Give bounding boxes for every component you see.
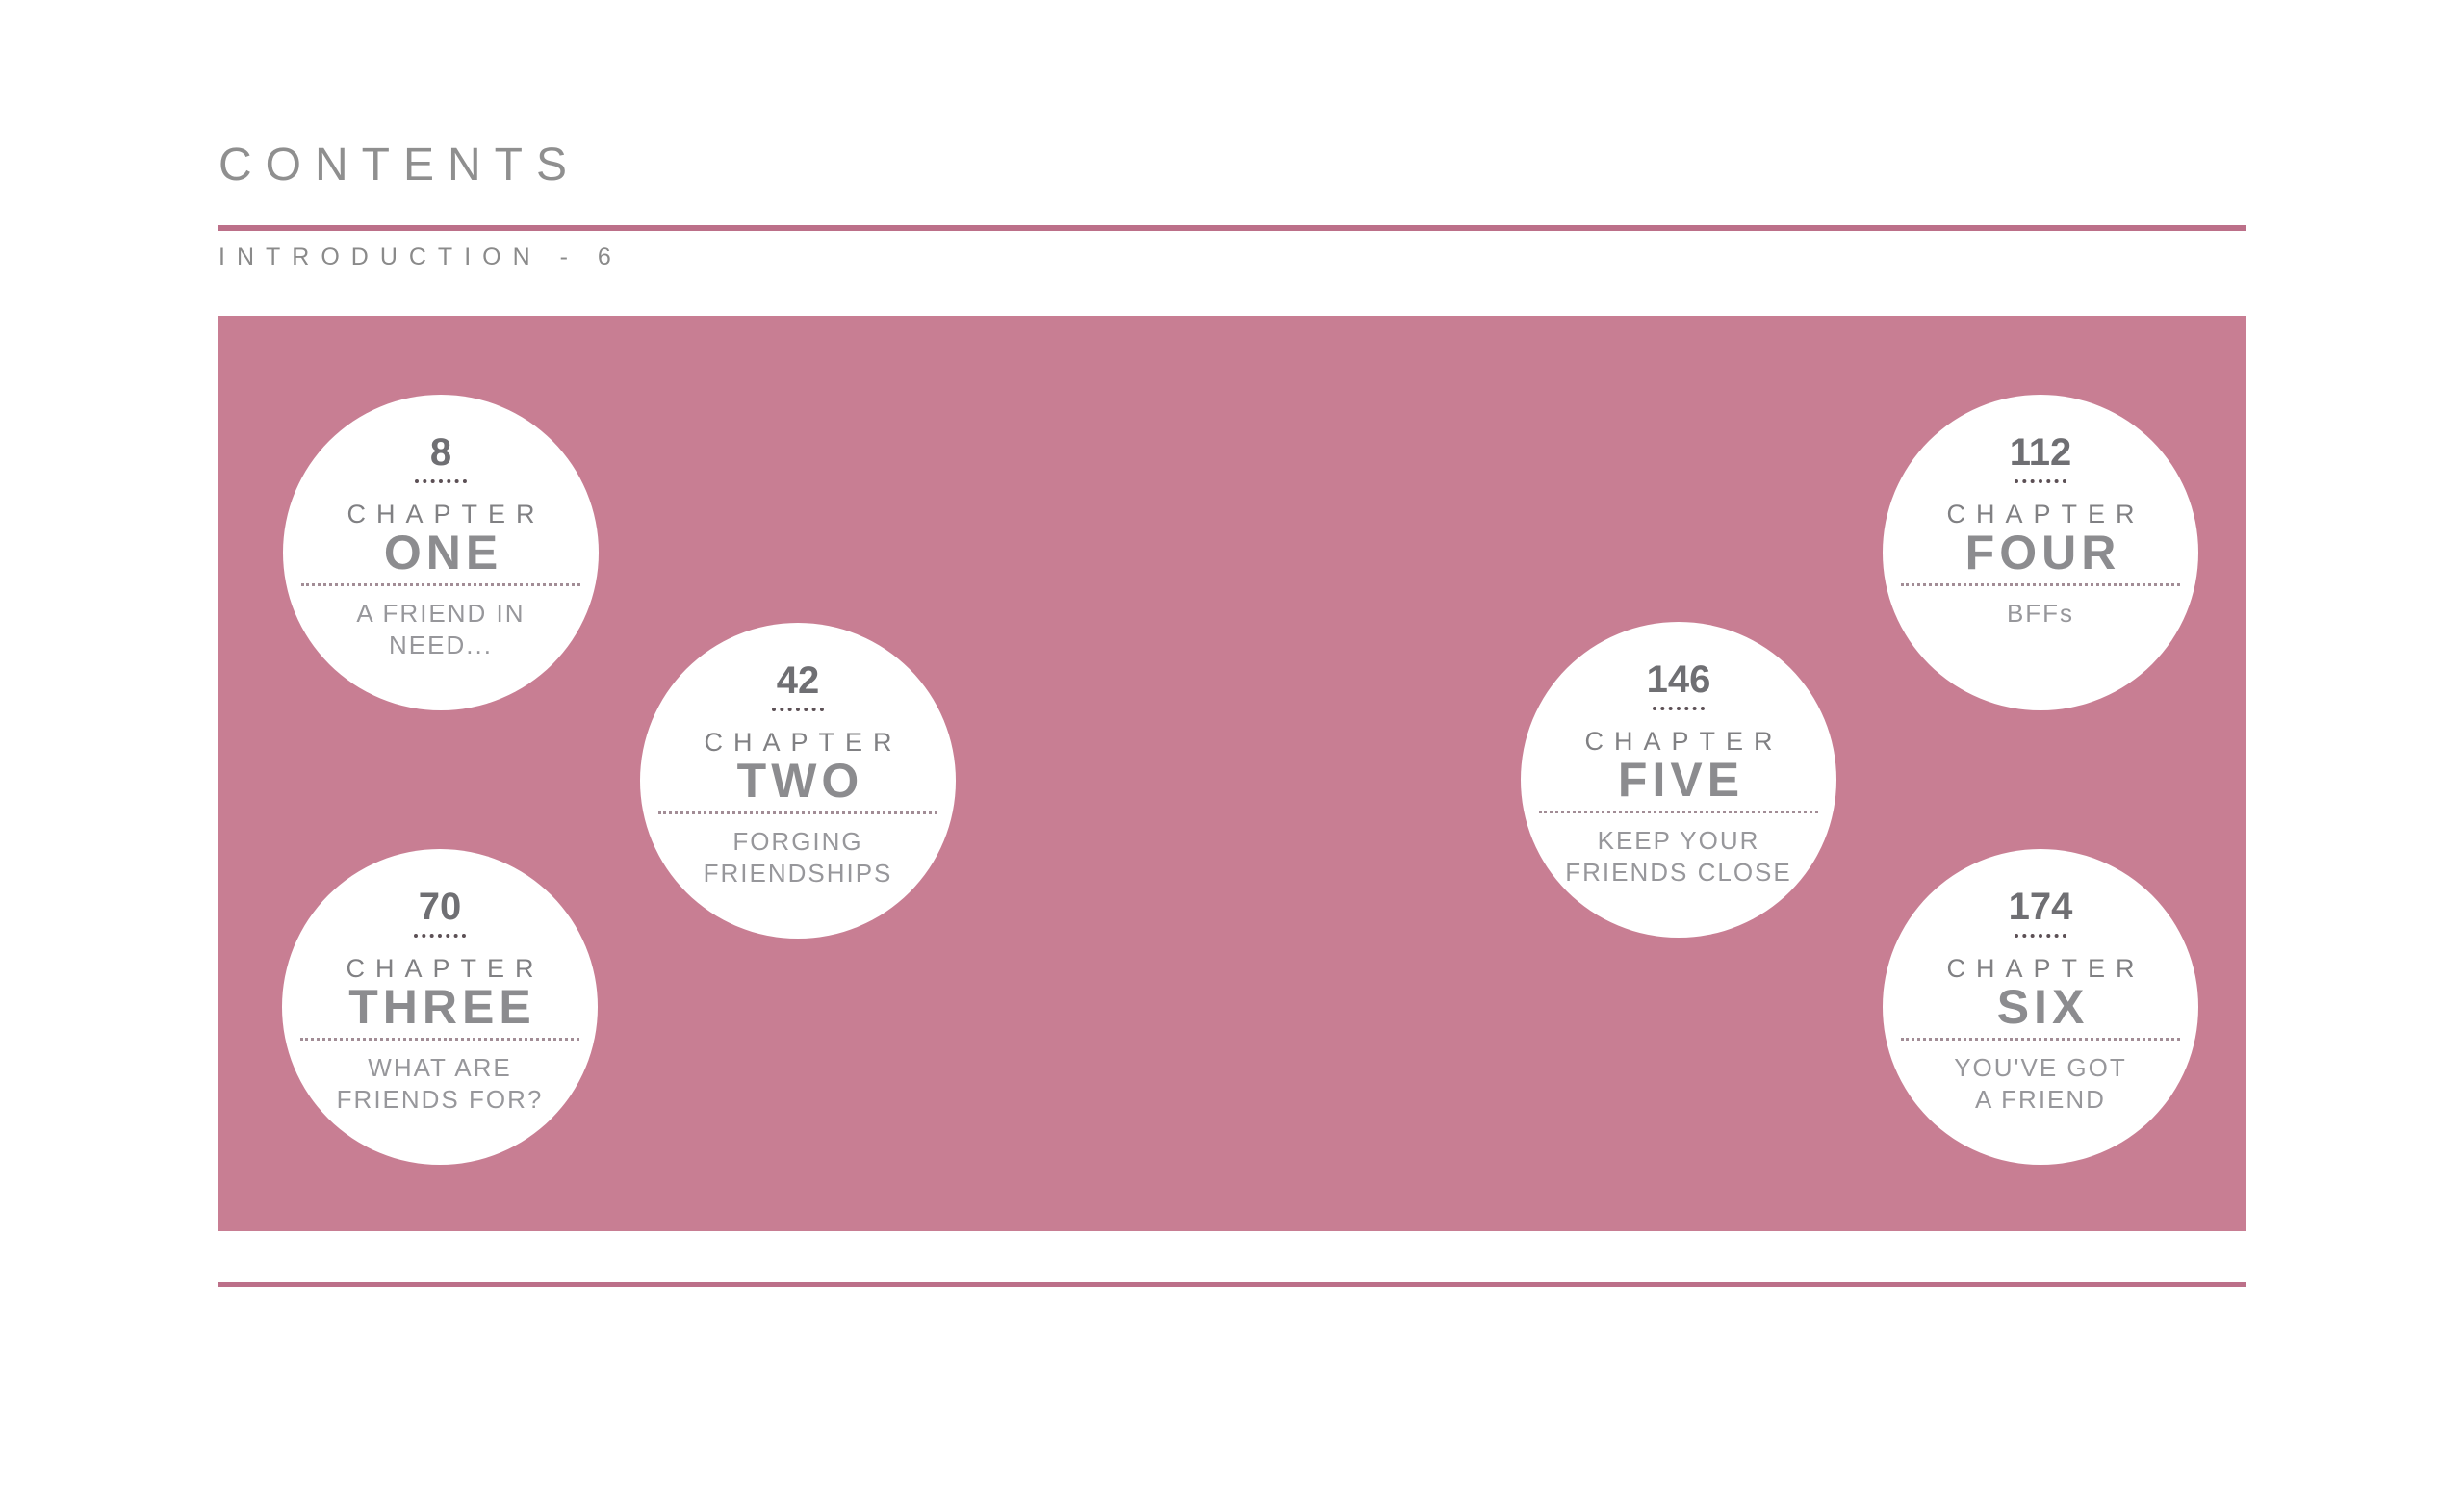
- top-divider-rule: [218, 225, 2246, 231]
- short-dotted-divider: [772, 708, 824, 711]
- long-dotted-divider: [1539, 811, 1818, 813]
- long-dotted-divider: [658, 811, 937, 814]
- page-title: CONTENTS: [218, 142, 580, 189]
- subtitle-line-1: WHAT ARE: [337, 1052, 544, 1084]
- chapter-label: CHAPTER: [693, 729, 902, 756]
- subtitle-line-2: FRIENDS CLOSE: [1565, 857, 1792, 889]
- chapter-subtitle: KEEP YOUR FRIENDS CLOSE: [1565, 825, 1792, 889]
- contents-pink-band: 8 CHAPTER ONE A FRIEND IN NEED... 42 CHA…: [218, 316, 2246, 1231]
- long-dotted-divider: [1901, 583, 2180, 586]
- short-dotted-divider: [415, 479, 467, 483]
- chapter-five-circle: 146 CHAPTER FIVE KEEP YOUR FRIENDS CLOSE: [1521, 622, 1836, 938]
- chapter-name: THREE: [344, 984, 535, 1030]
- chapter-label: CHAPTER: [1936, 501, 2144, 528]
- long-dotted-divider: [301, 583, 580, 586]
- subtitle-line-1: YOU'VE GOT: [1954, 1052, 2127, 1084]
- subtitle-line-2: FRIENDSHIPS: [704, 858, 893, 889]
- chapter-page-number: 70: [419, 888, 462, 926]
- chapter-name: FIVE: [1613, 757, 1744, 803]
- short-dotted-divider: [2015, 934, 2066, 938]
- chapter-name: ONE: [379, 529, 502, 576]
- chapter-four-circle: 112 CHAPTER FOUR BFFs: [1883, 395, 2198, 710]
- chapter-subtitle: BFFs: [2007, 598, 2074, 630]
- chapter-name: SIX: [1992, 984, 2090, 1030]
- short-dotted-divider: [1653, 707, 1705, 710]
- subtitle-line-2: A FRIEND: [1954, 1084, 2127, 1116]
- chapter-six-circle: 174 CHAPTER SIX YOU'VE GOT A FRIEND: [1883, 849, 2198, 1165]
- long-dotted-divider: [300, 1038, 579, 1041]
- chapter-label: CHAPTER: [336, 501, 545, 528]
- chapter-one-circle: 8 CHAPTER ONE A FRIEND IN NEED...: [283, 395, 599, 710]
- chapter-subtitle: A FRIEND IN NEED...: [356, 598, 525, 661]
- chapter-subtitle: YOU'VE GOT A FRIEND: [1954, 1052, 2127, 1116]
- chapter-three-circle: 70 CHAPTER THREE WHAT ARE FRIENDS FOR?: [282, 849, 598, 1165]
- short-dotted-divider: [414, 934, 466, 938]
- chapter-subtitle: FORGING FRIENDSHIPS: [704, 826, 893, 889]
- subtitle-line-1: KEEP YOUR: [1565, 825, 1792, 857]
- long-dotted-divider: [1901, 1038, 2180, 1041]
- chapter-name: TWO: [732, 758, 864, 804]
- chapter-name: FOUR: [1961, 529, 2121, 576]
- chapter-two-circle: 42 CHAPTER TWO FORGING FRIENDSHIPS: [640, 623, 956, 939]
- subtitle-line-1: A FRIEND IN: [356, 598, 525, 630]
- subtitle-line-1: FORGING: [704, 826, 893, 858]
- chapter-page-number: 174: [2009, 888, 2073, 926]
- short-dotted-divider: [2015, 479, 2066, 483]
- bottom-divider-rule: [218, 1282, 2246, 1287]
- chapter-page-number: 8: [430, 433, 451, 472]
- chapter-label: CHAPTER: [1936, 955, 2144, 982]
- chapter-label: CHAPTER: [1574, 728, 1783, 755]
- introduction-entry: INTRODUCTION - 6: [218, 243, 623, 271]
- chapter-page-number: 42: [777, 661, 820, 700]
- chapter-page-number: 112: [2010, 433, 2072, 472]
- subtitle-line-2: NEED...: [356, 630, 525, 661]
- chapter-subtitle: WHAT ARE FRIENDS FOR?: [337, 1052, 544, 1116]
- chapter-page-number: 146: [1647, 660, 1711, 699]
- subtitle-line-1: BFFs: [2007, 598, 2074, 630]
- subtitle-line-2: FRIENDS FOR?: [337, 1084, 544, 1116]
- chapter-label: CHAPTER: [335, 955, 544, 982]
